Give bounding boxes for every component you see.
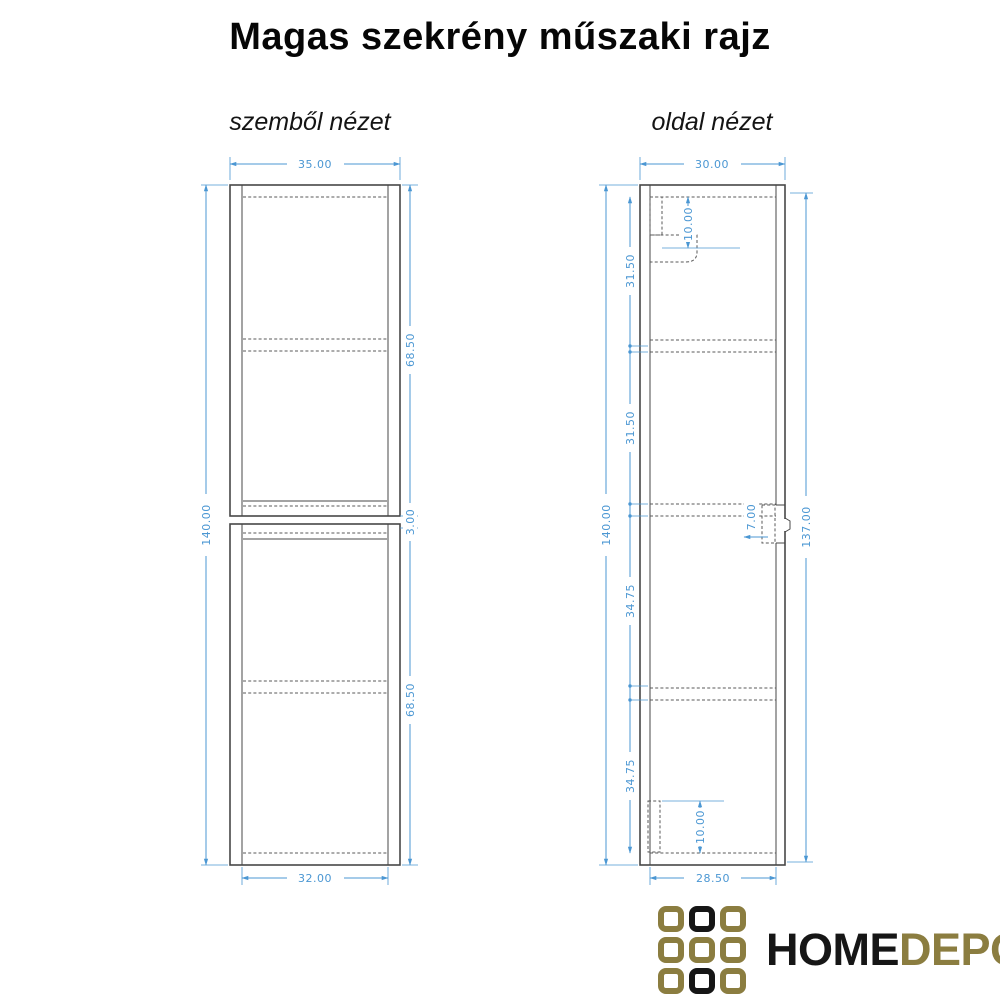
logo-square — [658, 937, 684, 963]
logo-text: HOMEDEPO — [766, 924, 1000, 976]
logo-square — [658, 968, 684, 994]
front-dim-middle-gap-value: 3.00 — [404, 509, 417, 536]
front-dim-inner-width-value: 32.00 — [298, 872, 332, 885]
side-dim-section2-value: 31.50 — [624, 411, 637, 445]
side-dim-bracket-depth-value: 7.00 — [745, 504, 758, 531]
side-view-drawing: 10.00 10.00 7.00 30.00 140.00 — [599, 157, 813, 885]
side-dim-bottom-bracket: 10.00 — [662, 801, 724, 853]
side-dim-top-bracket-value: 10.00 — [682, 207, 695, 241]
logo-square — [720, 937, 746, 963]
side-dim-top-bracket: 10.00 — [662, 197, 740, 248]
side-dim-section1-value: 31.50 — [624, 254, 637, 288]
front-hidden-lines — [243, 197, 387, 853]
front-dim-outer-height-value: 140.00 — [200, 504, 213, 546]
side-dim-section4-value: 34.75 — [624, 759, 637, 793]
front-dim-right-segments: 68.50 3.00 68.50 — [400, 185, 418, 865]
front-dim-inner-width: 32.00 — [242, 867, 388, 885]
front-dim-outer-height: 140.00 — [199, 185, 228, 865]
logo-grid-icon — [658, 906, 746, 994]
side-cabinet-outline — [640, 185, 790, 865]
logo-square — [689, 937, 715, 963]
side-dim-inner-depth: 28.50 — [650, 867, 776, 885]
front-dim-lower-unit-value: 68.50 — [404, 683, 417, 717]
side-dim-outer-depth: 30.00 — [640, 157, 785, 180]
logo-square — [720, 968, 746, 994]
side-dim-front-height-value: 137.00 — [800, 506, 813, 548]
side-dim-outer-height-value: 140.00 — [600, 504, 613, 546]
side-dim-inner-depth-value: 28.50 — [696, 872, 730, 885]
side-dim-outer-depth-value: 30.00 — [695, 158, 729, 171]
logo-text-depo: DEPO — [899, 924, 1000, 975]
logo-square — [658, 906, 684, 932]
side-dim-bottom-bracket-value: 10.00 — [694, 810, 707, 844]
side-dim-section3-value: 34.75 — [624, 584, 637, 618]
homedepo-logo: HOMEDEPO — [658, 906, 1000, 994]
top-mount-strip — [650, 197, 662, 235]
front-view-drawing: 35.00 140.00 68.50 3.00 68.50 32.0 — [199, 157, 418, 885]
logo-square — [689, 968, 715, 994]
logo-square — [689, 906, 715, 932]
front-dim-upper-unit-value: 68.50 — [404, 333, 417, 367]
logo-text-home: HOME — [766, 924, 899, 975]
side-dim-front-height: 137.00 — [787, 193, 813, 862]
front-cabinet-outline — [230, 185, 400, 865]
side-dim-bracket-depth: 7.00 — [744, 500, 768, 537]
technical-drawing: 35.00 140.00 68.50 3.00 68.50 32.0 — [0, 0, 1000, 1000]
logo-square — [720, 906, 746, 932]
front-dim-outer-width-value: 35.00 — [298, 158, 332, 171]
side-dim-sections: 31.50 31.50 34.75 34.75 — [623, 197, 648, 853]
front-dim-outer-width: 35.00 — [230, 157, 400, 180]
